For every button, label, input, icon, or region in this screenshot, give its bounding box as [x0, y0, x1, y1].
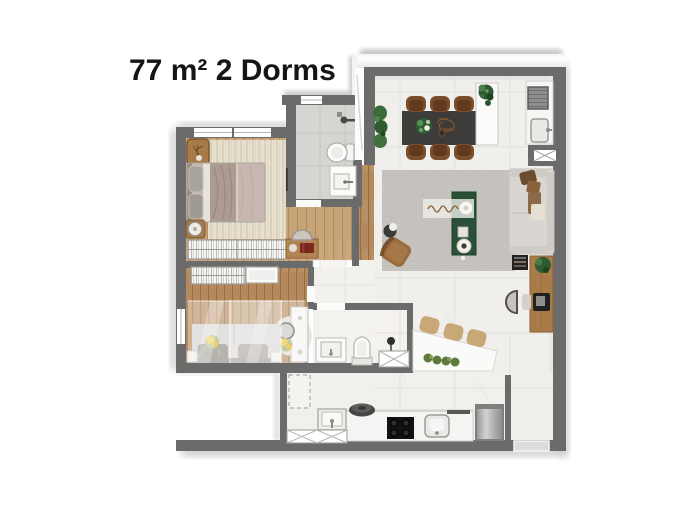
svg-text:77 m² 2 Dorms: 77 m² 2 Dorms — [129, 54, 336, 87]
